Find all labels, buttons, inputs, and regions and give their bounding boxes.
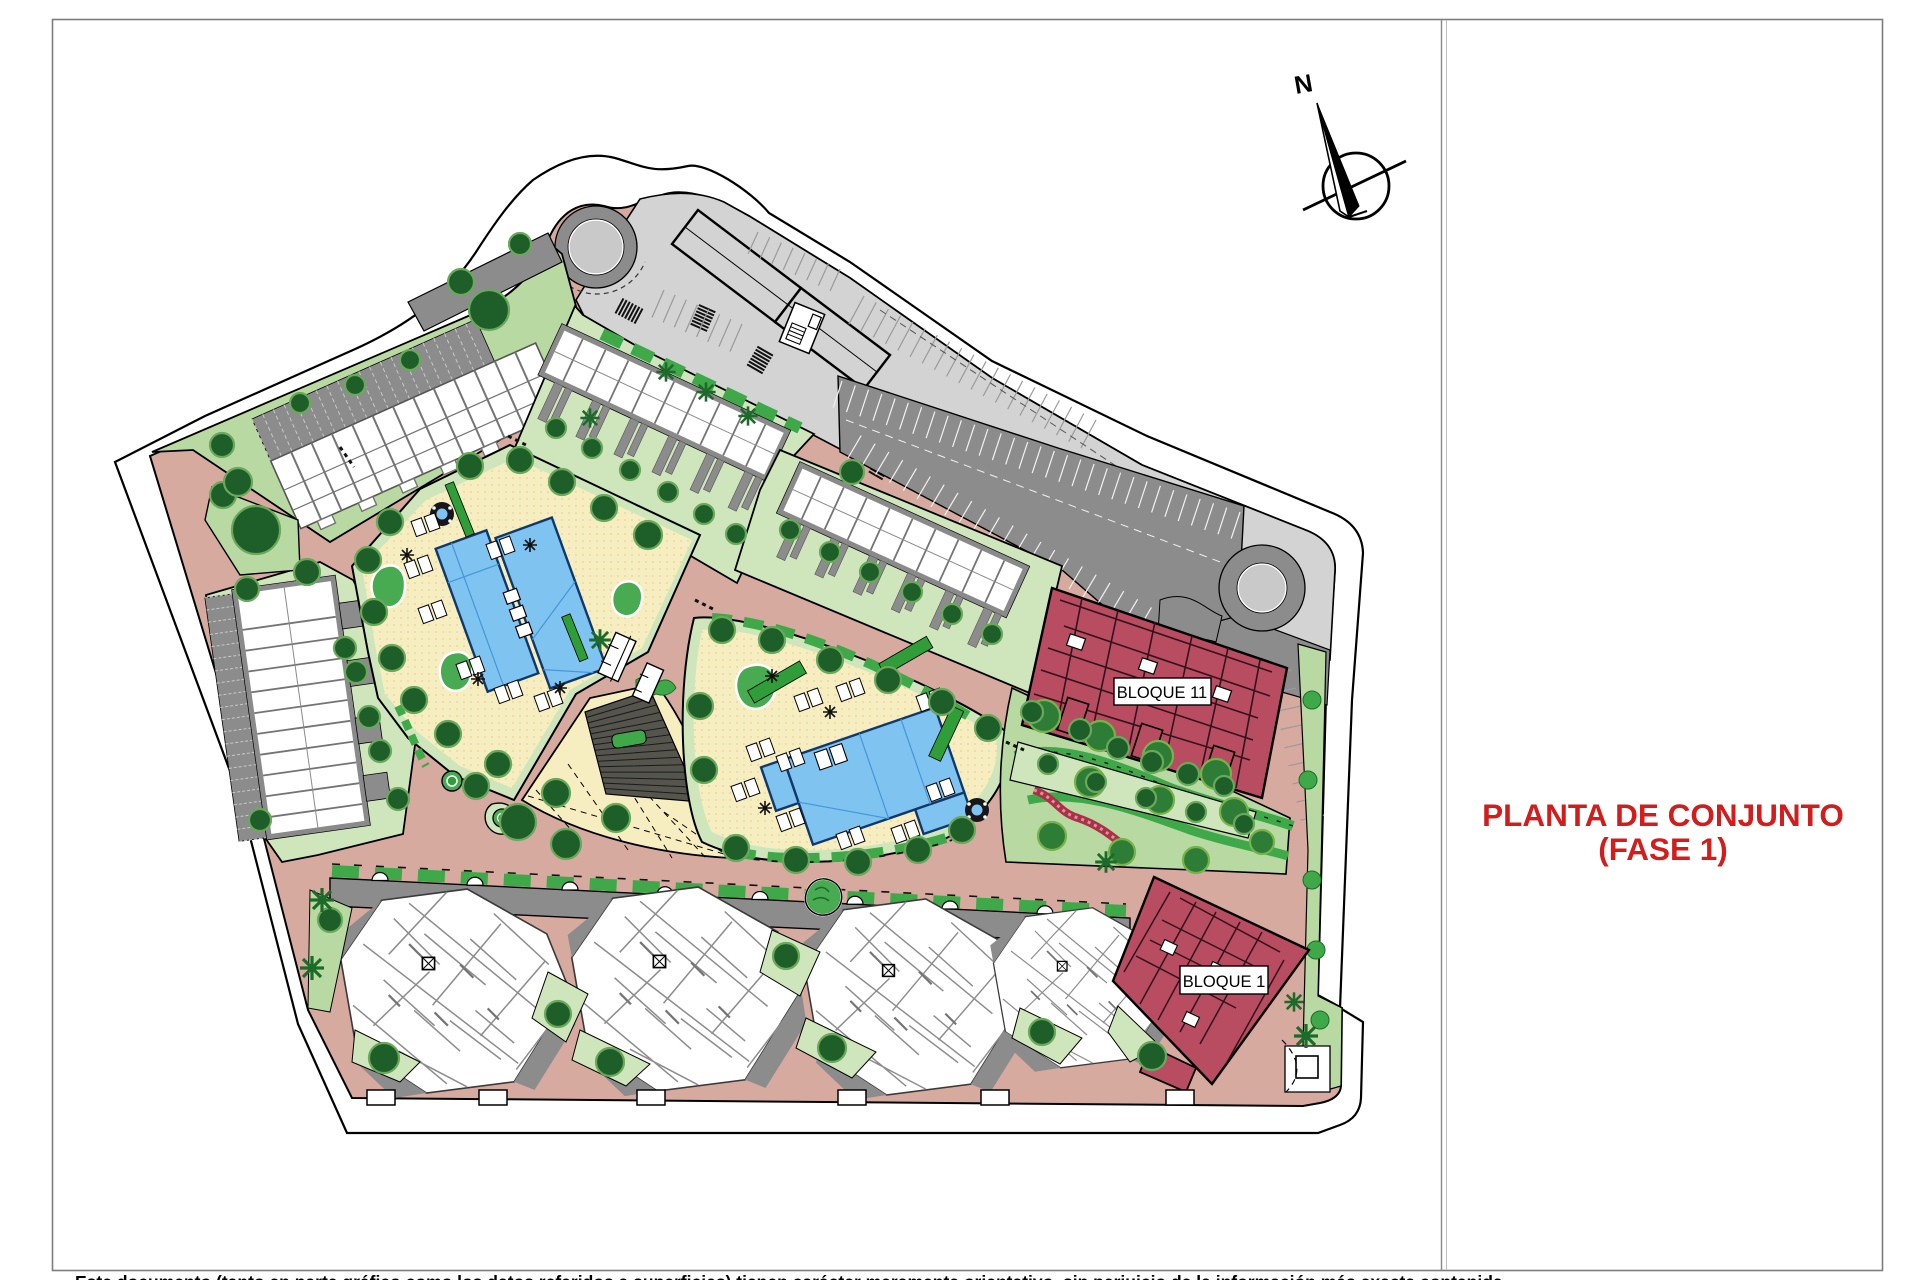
svg-text:BLOQUE 1: BLOQUE 1 (1183, 973, 1266, 991)
svg-text:Este documento (tanto en parte: Este documento (tanto en parte gráfico c… (75, 1272, 1503, 1280)
svg-text:(FASE 1): (FASE 1) (1598, 831, 1728, 867)
svg-text:BLOQUE 11: BLOQUE 11 (1117, 684, 1207, 702)
svg-text:PLANTA DE CONJUNTO: PLANTA DE CONJUNTO (1482, 797, 1844, 833)
